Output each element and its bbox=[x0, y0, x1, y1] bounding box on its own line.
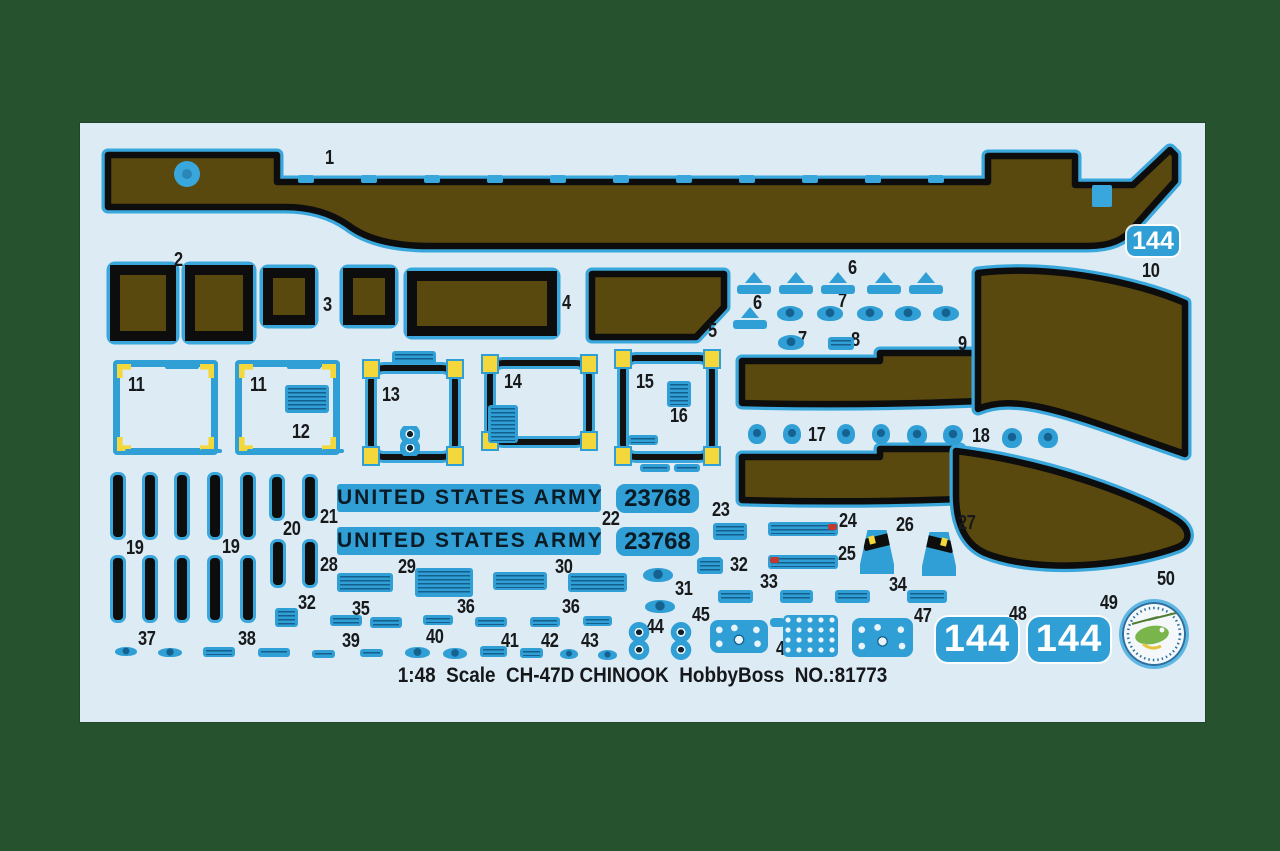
decal-arrow bbox=[909, 272, 943, 294]
decal-blob bbox=[837, 424, 855, 444]
decal-stencil bbox=[835, 590, 870, 603]
decal-stencil bbox=[488, 405, 518, 443]
decal-stencil bbox=[370, 617, 402, 628]
decal-stencil bbox=[697, 558, 723, 574]
decal-stencil bbox=[285, 385, 329, 413]
decal-bar bbox=[177, 558, 187, 620]
decal-blob bbox=[158, 648, 182, 657]
decal-bar bbox=[210, 558, 220, 620]
decal-blob bbox=[405, 647, 430, 658]
decal-arrow bbox=[867, 272, 901, 294]
decal-bar bbox=[145, 475, 155, 537]
decal-mark bbox=[287, 364, 321, 369]
decal-bar bbox=[273, 542, 283, 585]
decal-bar bbox=[210, 475, 220, 537]
decal-blob bbox=[857, 306, 883, 321]
decal-stencil bbox=[907, 590, 947, 603]
decal-red bbox=[770, 557, 779, 563]
decal-stencil bbox=[583, 616, 612, 626]
decal-stencil bbox=[828, 337, 854, 350]
decal-panel bbox=[852, 618, 913, 657]
decal-stencil bbox=[780, 590, 813, 603]
decal-blob bbox=[943, 425, 963, 445]
decal-stencil bbox=[415, 568, 473, 597]
decal-stencil bbox=[258, 648, 290, 657]
decal-blob bbox=[1002, 428, 1022, 448]
decal-stencil bbox=[312, 650, 335, 658]
decal-blob bbox=[748, 424, 766, 444]
decal-sheet: UNITED STATES ARMY 23768 UNITED STATES A… bbox=[80, 123, 1205, 722]
decal-stencil bbox=[423, 615, 453, 625]
decal-stencil bbox=[275, 608, 298, 627]
decal-arrow bbox=[733, 307, 767, 329]
decal-fig8 bbox=[667, 622, 695, 660]
decal-bar bbox=[272, 477, 282, 518]
decal-mark bbox=[165, 364, 199, 369]
decal-bar bbox=[305, 542, 315, 585]
decal-trapL bbox=[860, 530, 894, 574]
decal-stencil bbox=[392, 351, 436, 364]
decal-stencil bbox=[520, 648, 543, 658]
decal-stencil bbox=[480, 646, 507, 657]
decal-bar bbox=[145, 558, 155, 620]
decal-stencil bbox=[628, 435, 658, 445]
decal-blob bbox=[895, 306, 921, 321]
decal-blob bbox=[872, 424, 890, 444]
decal-stencil bbox=[475, 617, 507, 627]
decal-stencil bbox=[667, 381, 691, 407]
decal-bar bbox=[305, 477, 315, 518]
decal-stencil bbox=[337, 573, 393, 592]
decal-blob bbox=[817, 306, 843, 321]
decal-bar bbox=[243, 475, 253, 537]
decal-fig8 bbox=[400, 426, 420, 456]
decal-mark bbox=[322, 449, 344, 453]
decal-bar bbox=[177, 475, 187, 537]
decal-blob bbox=[1038, 428, 1058, 448]
decal-stencil bbox=[203, 647, 235, 657]
decal-stencil bbox=[718, 590, 753, 603]
decal-blob bbox=[115, 647, 137, 656]
decal-blob bbox=[598, 650, 617, 660]
decal-stencil bbox=[360, 649, 383, 657]
decal-stencil bbox=[568, 573, 627, 592]
decal-panel bbox=[710, 620, 768, 653]
decal-stencil bbox=[640, 464, 670, 472]
decal-blob bbox=[907, 425, 927, 445]
decal-stencil bbox=[330, 615, 362, 626]
decal-arrow bbox=[737, 272, 771, 294]
decal-bar bbox=[243, 558, 253, 620]
decal-bar bbox=[113, 558, 123, 620]
decal-mark bbox=[200, 449, 222, 453]
decal-mark bbox=[247, 449, 275, 453]
decal-blob bbox=[645, 600, 675, 613]
decal-red bbox=[828, 524, 837, 530]
decal-fig8 bbox=[625, 622, 653, 660]
decal-blob bbox=[443, 648, 467, 659]
decal-stencil bbox=[713, 523, 747, 540]
decal-arrow bbox=[779, 272, 813, 294]
decal-mark bbox=[125, 449, 153, 453]
decal-mark bbox=[297, 449, 307, 453]
decal-bar bbox=[113, 475, 123, 537]
decal-grid bbox=[783, 615, 838, 657]
decal-stencil bbox=[674, 464, 700, 472]
decal-blob bbox=[778, 335, 804, 350]
decal-stencil bbox=[493, 572, 547, 590]
decal-blob bbox=[933, 306, 959, 321]
decal-stencil bbox=[530, 617, 560, 627]
photo-background: UNITED STATES ARMY 23768 UNITED STATES A… bbox=[0, 0, 1280, 851]
small-decals-layer bbox=[80, 123, 1205, 722]
decal-blob bbox=[643, 568, 673, 582]
decal-blob bbox=[783, 424, 801, 444]
decal-mark bbox=[175, 449, 185, 453]
decal-blob bbox=[560, 649, 578, 659]
decal-trapR bbox=[922, 532, 956, 576]
decal-arrow bbox=[821, 272, 855, 294]
decal-blob bbox=[777, 306, 803, 321]
